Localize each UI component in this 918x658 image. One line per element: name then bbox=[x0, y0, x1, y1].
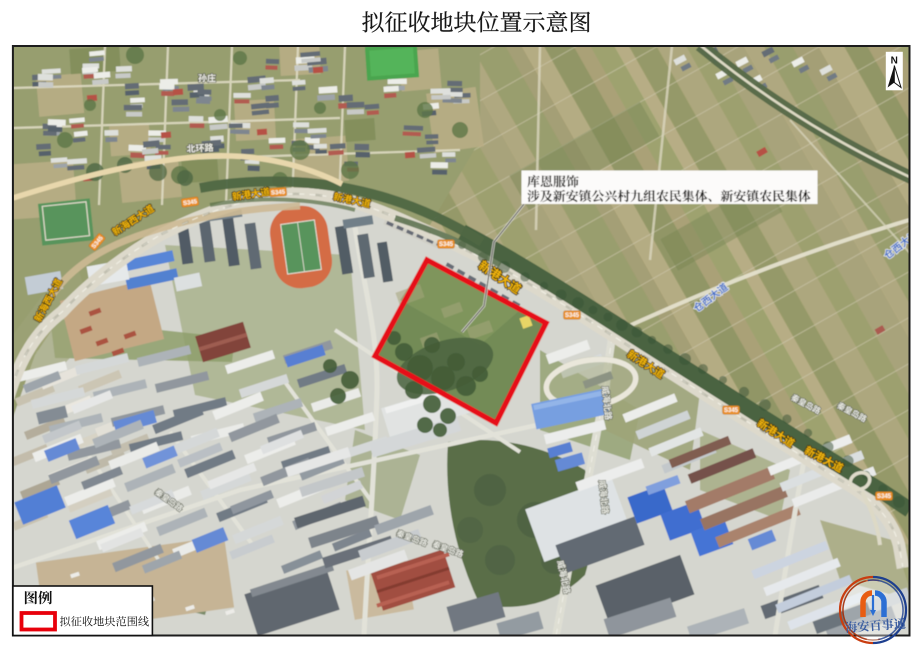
svg-text:N: N bbox=[891, 56, 898, 67]
